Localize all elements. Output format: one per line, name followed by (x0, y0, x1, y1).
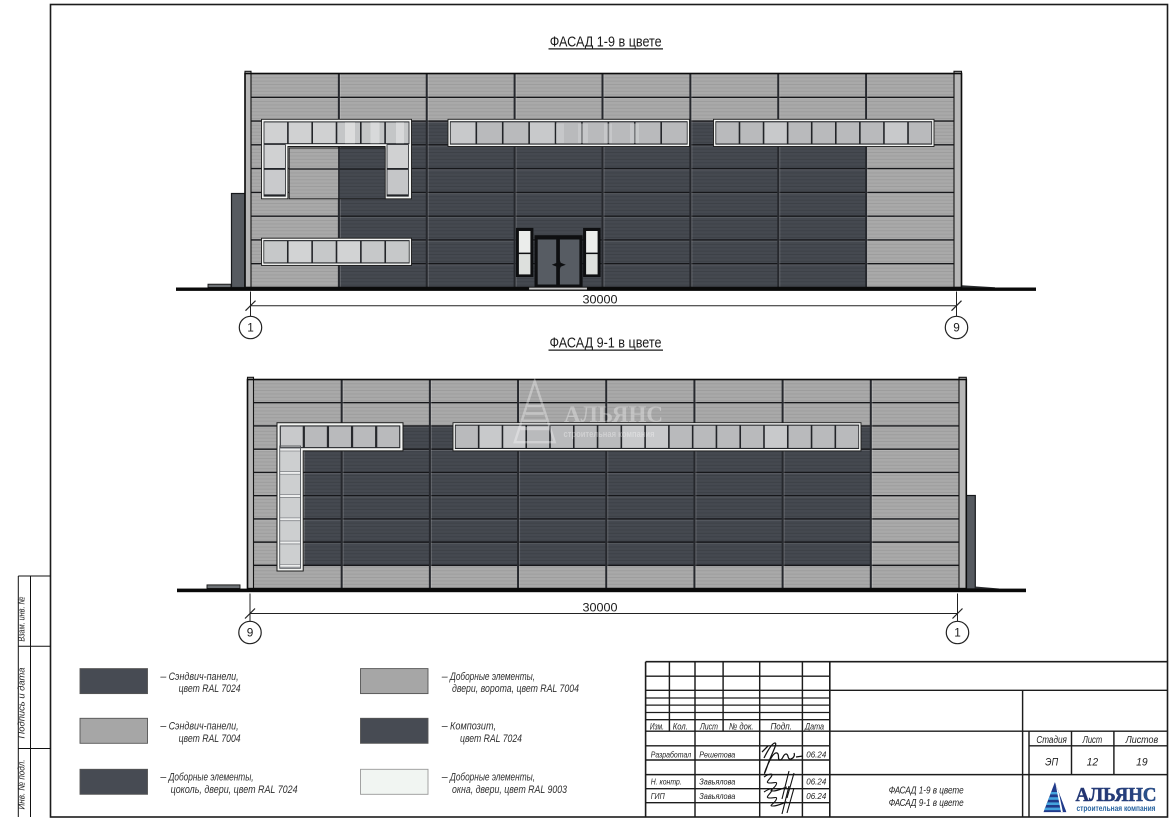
svg-text:Доборные элементы,: Доборные элементы, (449, 772, 535, 784)
svg-text:ЭП: ЭП (1045, 757, 1058, 769)
svg-text:ГИП: ГИП (651, 791, 666, 801)
svg-text:06.24: 06.24 (806, 791, 826, 801)
svg-text:Лист: Лист (699, 720, 718, 731)
svg-text:–: – (441, 721, 448, 733)
svg-text:двери, ворота, цвет RAL 7004: двери, ворота, цвет RAL 7004 (452, 683, 579, 695)
svg-text:ФАСАД 9-1 в цвете: ФАСАД 9-1 в цвете (550, 335, 662, 352)
svg-text:№ док.: № док. (729, 720, 754, 731)
svg-text:АЛЬЯНС: АЛЬЯНС (564, 402, 663, 427)
svg-text:06.24: 06.24 (806, 777, 826, 787)
svg-text:цвет RAL 7024: цвет RAL 7024 (179, 683, 241, 695)
svg-text:06.24: 06.24 (806, 749, 826, 759)
svg-text:цвет RAL 7024: цвет RAL 7024 (460, 733, 522, 745)
svg-text:ФАСАД 1-9 в цвете: ФАСАД 1-9 в цвете (550, 33, 662, 50)
svg-text:Завьялова: Завьялова (699, 791, 735, 801)
svg-text:Завьялова: Завьялова (699, 777, 735, 787)
svg-text:Сэндвич-панели,: Сэндвич-панели, (169, 721, 239, 733)
svg-text:–: – (441, 772, 448, 784)
svg-text:окна, двери, цвет RAL 9003: окна, двери, цвет RAL 9003 (452, 784, 567, 796)
svg-text:Инв. № подл.: Инв. № подл. (17, 760, 28, 810)
svg-text:ФАСАД 9-1 в цвете: ФАСАД 9-1 в цвете (889, 798, 965, 809)
svg-text:цвет RAL 7004: цвет RAL 7004 (179, 733, 241, 745)
svg-text:30000: 30000 (583, 600, 618, 614)
svg-text:Кол.: Кол. (673, 720, 688, 731)
svg-text:Разработал: Разработал (651, 749, 692, 759)
svg-text:ФАСАД 1-9 в цвете: ФАСАД 1-9 в цвете (889, 786, 965, 797)
svg-text:Решетова: Решетова (699, 749, 735, 759)
svg-text:АЛЬЯНС: АЛЬЯНС (1076, 784, 1157, 806)
svg-text:Лист: Лист (1082, 735, 1102, 746)
svg-text:–: – (159, 721, 166, 733)
svg-text:Дата: Дата (804, 720, 824, 731)
svg-text:строительная компания: строительная компания (564, 429, 655, 439)
svg-text:Листов: Листов (1125, 735, 1158, 746)
svg-text:–: – (441, 671, 448, 683)
svg-text:цоколь, двери, цвет RAL 7024: цоколь, двери, цвет RAL 7024 (171, 784, 298, 796)
svg-text:Взам. инв. №: Взам. инв. № (17, 597, 28, 642)
svg-text:19: 19 (1136, 757, 1148, 769)
svg-text:–: – (159, 671, 166, 683)
svg-text:Доборные элементы,: Доборные элементы, (449, 671, 535, 683)
svg-text:Подпись и дата: Подпись и дата (17, 668, 28, 739)
svg-text:12: 12 (1087, 757, 1099, 769)
svg-text:Доборные элементы,: Доборные элементы, (168, 772, 254, 784)
svg-text:1: 1 (247, 321, 254, 335)
svg-text:строительная компания: строительная компания (1077, 804, 1156, 813)
svg-text:Подп.: Подп. (770, 720, 792, 731)
svg-text:9: 9 (247, 626, 254, 640)
svg-text:Изм.: Изм. (650, 720, 664, 731)
svg-text:9: 9 (953, 321, 960, 335)
svg-text:Композит,: Композит, (450, 721, 496, 733)
svg-text:1: 1 (954, 626, 961, 640)
svg-text:30000: 30000 (583, 293, 618, 307)
svg-text:Стадия: Стадия (1036, 735, 1067, 746)
svg-text:–: – (159, 772, 166, 784)
svg-text:Н. контр.: Н. контр. (651, 777, 682, 787)
svg-text:Сэндвич-панели,: Сэндвич-панели, (169, 671, 239, 683)
